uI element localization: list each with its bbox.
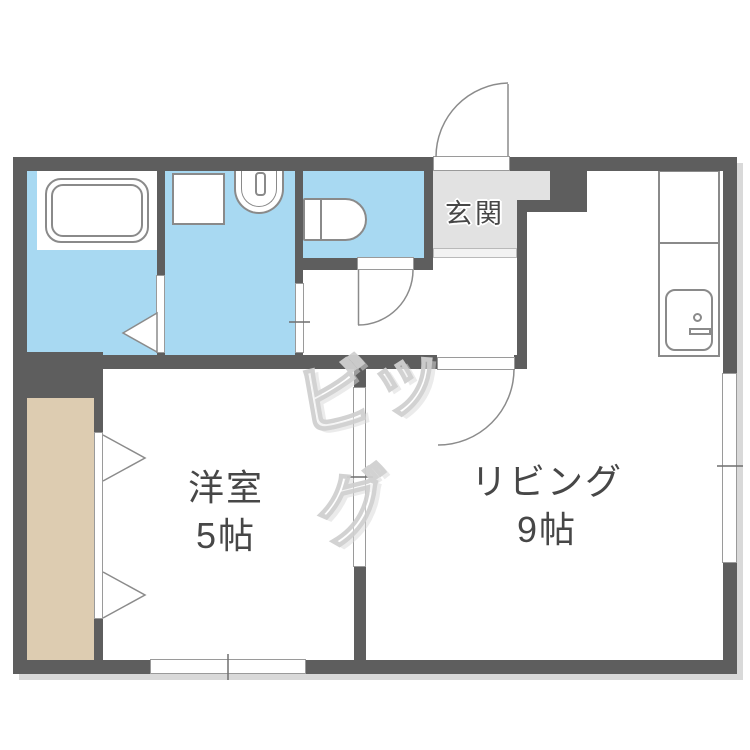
closet-floor — [23, 398, 94, 660]
washing-machine-pan-icon — [172, 173, 225, 225]
floor-plan: 玄関 リビング 9帖 洋室 5帖 ビッグ — [0, 0, 750, 750]
faucet-icon — [255, 172, 266, 196]
kitchen-counter — [658, 170, 720, 357]
wall-toilet-entrance — [424, 157, 433, 258]
shadow-right — [737, 163, 743, 679]
living-size: 9帖 — [455, 506, 639, 554]
wall-western-living-lower — [354, 567, 366, 660]
western-room-label: 洋室 5帖 — [134, 464, 318, 560]
wall-closet-right-upper — [94, 398, 103, 432]
window-right — [722, 373, 737, 563]
living-label: リビング 9帖 — [455, 458, 639, 554]
entrance-door-slab — [433, 156, 510, 171]
wall-pillar-hall-door — [514, 355, 527, 369]
entrance-step — [433, 248, 517, 258]
western-name: 洋室 — [134, 464, 318, 512]
toilet-bowl-icon — [320, 198, 367, 241]
wall-top — [13, 157, 737, 171]
entrance-door-arc — [436, 83, 508, 157]
wall-bottom — [13, 660, 737, 674]
window-bottom — [150, 659, 306, 674]
living-name: リビング — [455, 458, 639, 506]
western-size: 5帖 — [134, 512, 318, 560]
kitchen-sink-icon — [665, 289, 713, 351]
bathroom-door-opening — [156, 275, 165, 353]
watermark-logo: ビッグ — [286, 300, 488, 445]
toilet-door-slab — [357, 257, 414, 270]
closet-door-opening — [94, 432, 103, 619]
bathtub-icon — [45, 178, 149, 243]
shadow-bottom — [19, 674, 743, 680]
wall-block-left — [13, 352, 103, 398]
wall-entrance-living — [517, 200, 527, 369]
wall-left — [13, 157, 27, 674]
wall-closet-right-lower — [94, 619, 103, 660]
closet-door-chevron-bottom — [103, 572, 145, 618]
entrance-label: 玄関 — [433, 192, 517, 231]
wall-bar-under-extension — [517, 200, 587, 212]
kitchen-faucet-icon — [693, 313, 702, 322]
entrance-floor-extension — [517, 171, 550, 200]
